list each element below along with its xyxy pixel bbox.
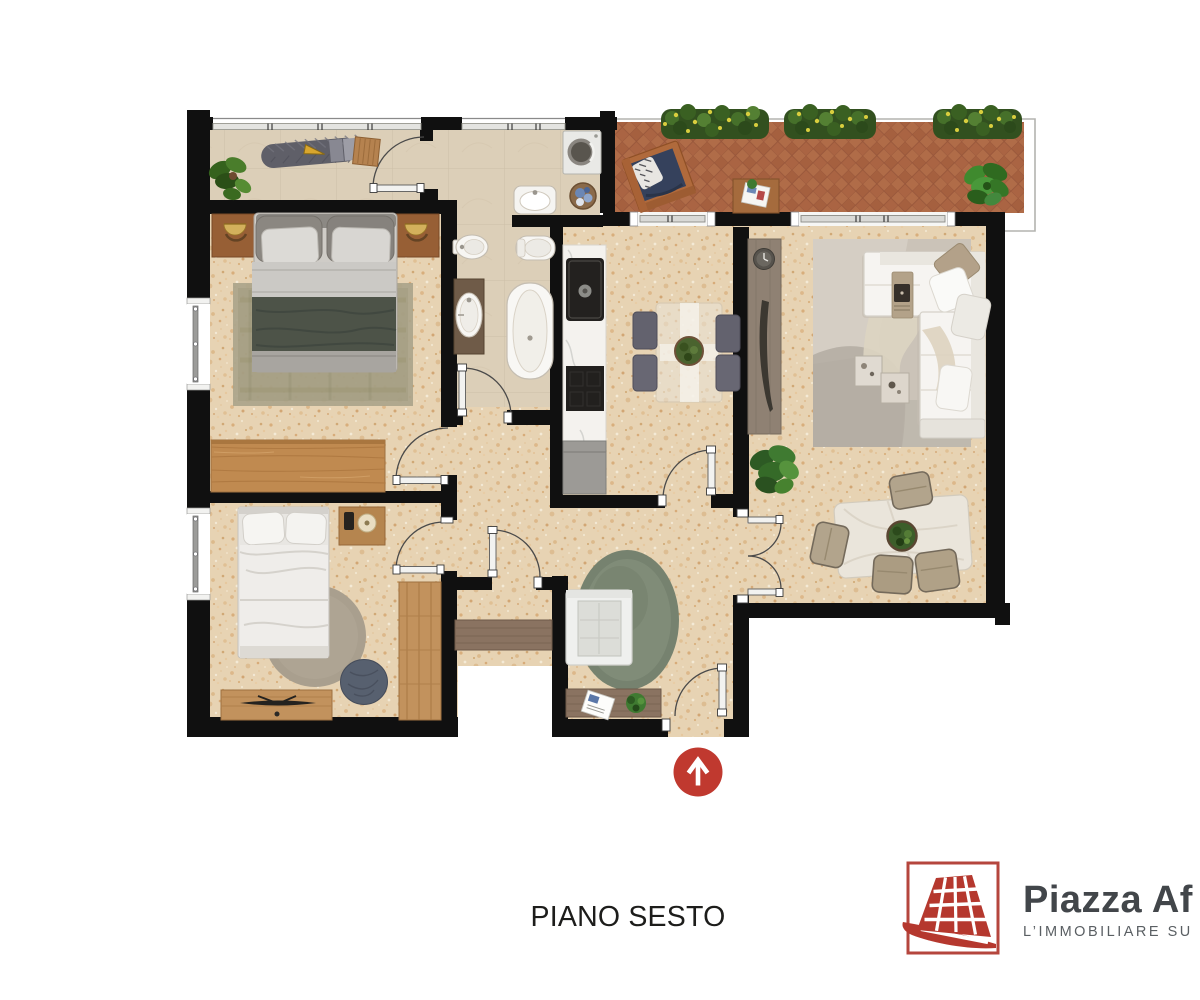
svg-text:Piazza Af: Piazza Af	[1023, 879, 1193, 921]
svg-text:L’IMMOBILIARE SU: L’IMMOBILIARE SU	[1023, 924, 1193, 940]
svg-text:PIANO SESTO: PIANO SESTO	[531, 901, 726, 933]
